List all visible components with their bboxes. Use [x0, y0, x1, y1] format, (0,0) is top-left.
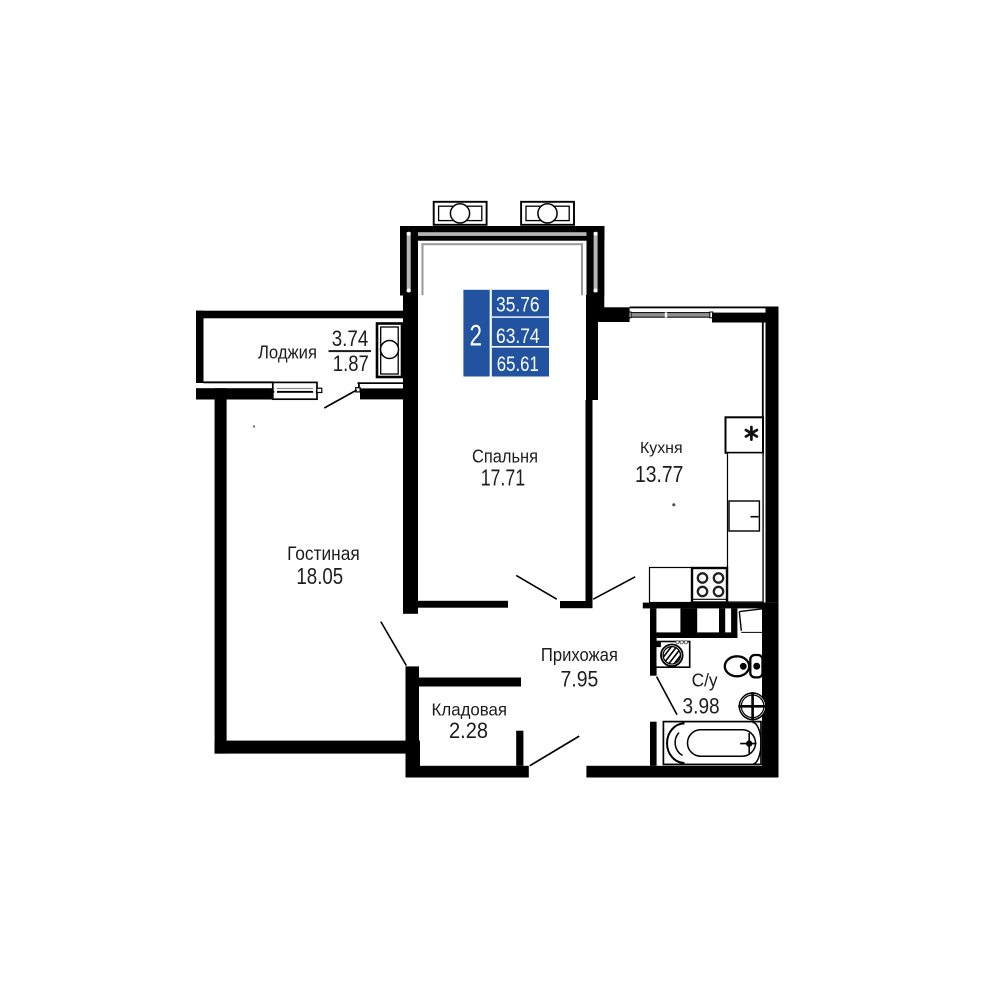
- svg-text:2.28: 2.28: [449, 718, 488, 743]
- svg-text:35.76: 35.76: [496, 294, 540, 317]
- svg-text:3.74: 3.74: [332, 326, 369, 351]
- svg-text:18.05: 18.05: [296, 563, 343, 589]
- svg-text:Кладовая: Кладовая: [432, 700, 508, 720]
- svg-text:Спальня: Спальня: [472, 447, 538, 467]
- svg-text:2: 2: [469, 320, 482, 353]
- svg-text:13.77: 13.77: [635, 461, 683, 487]
- svg-text:65.61: 65.61: [497, 353, 539, 376]
- svg-text:1.87: 1.87: [333, 351, 369, 376]
- svg-text:С/у: С/у: [692, 670, 719, 691]
- svg-text:3.98: 3.98: [683, 694, 720, 719]
- svg-text:Гостиная: Гостиная: [287, 544, 360, 565]
- svg-text:Прихожая: Прихожая: [541, 645, 618, 665]
- svg-text:17.71: 17.71: [481, 465, 525, 491]
- svg-text:7.95: 7.95: [561, 667, 599, 692]
- svg-text:Лоджия: Лоджия: [258, 343, 317, 363]
- svg-text:63.74: 63.74: [496, 325, 540, 348]
- svg-text:Кухня: Кухня: [640, 440, 683, 457]
